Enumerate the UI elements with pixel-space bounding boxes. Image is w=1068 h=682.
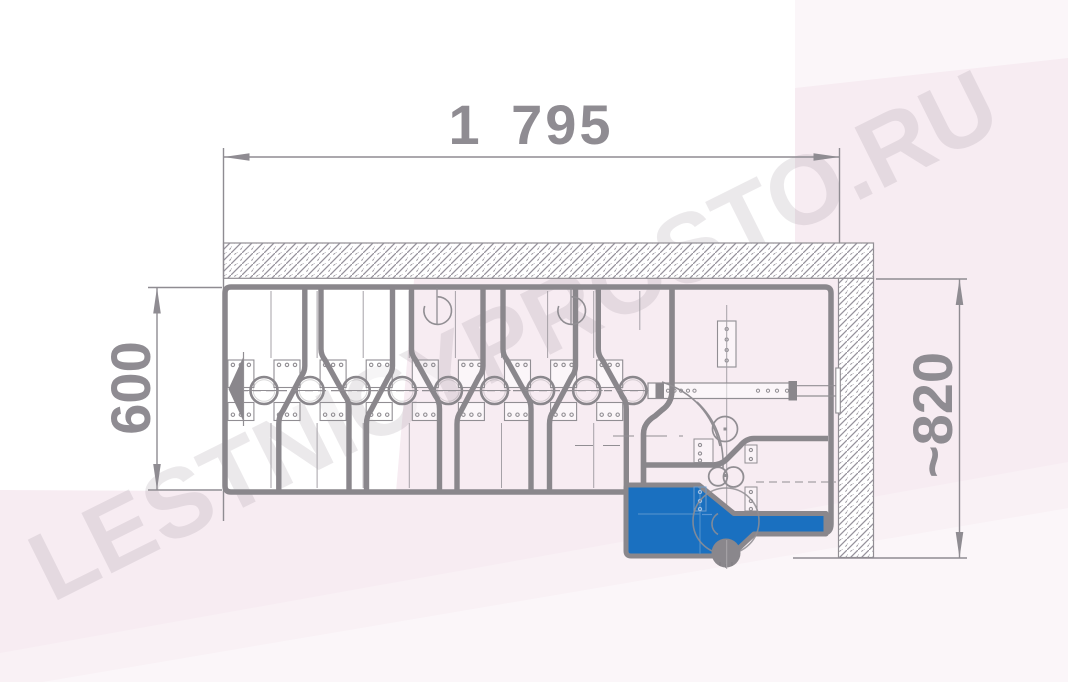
svg-text:~820: ~820 (901, 352, 964, 478)
svg-text:600: 600 (99, 341, 162, 434)
svg-text:1 795: 1 795 (449, 93, 614, 156)
